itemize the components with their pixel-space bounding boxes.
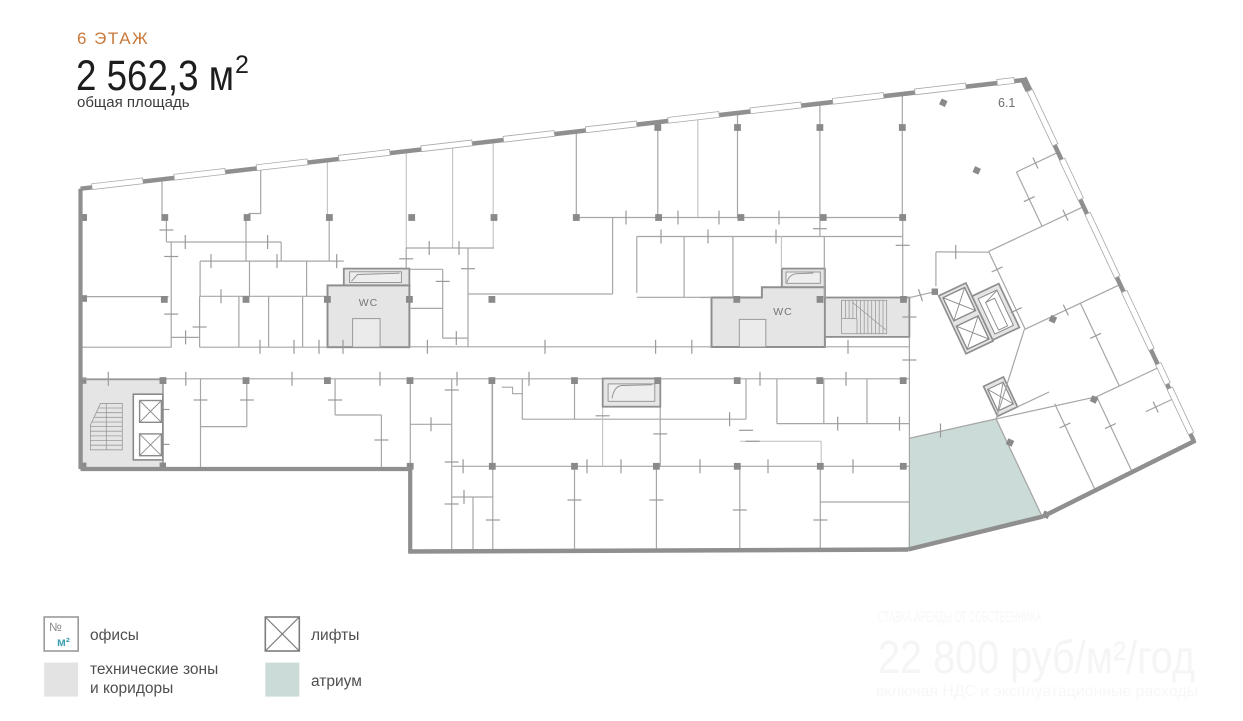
svg-text:2: 2 <box>235 51 249 79</box>
svg-text:офисы: офисы <box>90 627 139 644</box>
svg-text:6.1: 6.1 <box>998 96 1015 110</box>
svg-text:2 562,3 м: 2 562,3 м <box>76 52 234 100</box>
svg-text:WC: WC <box>773 306 793 318</box>
svg-text:м²: м² <box>57 635 70 649</box>
svg-text:атриум: атриум <box>311 673 362 690</box>
svg-text:СТАВКА АРЕНДЫ ОТ СОБСТВЕННИКА: СТАВКА АРЕНДЫ ОТ СОБСТВЕННИКА <box>878 609 1041 626</box>
svg-text:технические зоны: технические зоны <box>90 661 218 678</box>
svg-text:№: № <box>49 620 62 634</box>
svg-text:включая НДС и эксплуатационные: включая НДС и эксплуатационные расходы <box>876 683 1198 700</box>
svg-text:22 800 руб/м²/год: 22 800 руб/м²/год <box>878 631 1195 683</box>
svg-text:WC: WC <box>359 297 379 309</box>
svg-text:лифты: лифты <box>311 627 359 644</box>
svg-text:6 ЭТАЖ: 6 ЭТАЖ <box>77 29 149 48</box>
svg-text:общая площадь: общая площадь <box>77 94 190 111</box>
svg-text:и коридоры: и коридоры <box>90 680 173 697</box>
